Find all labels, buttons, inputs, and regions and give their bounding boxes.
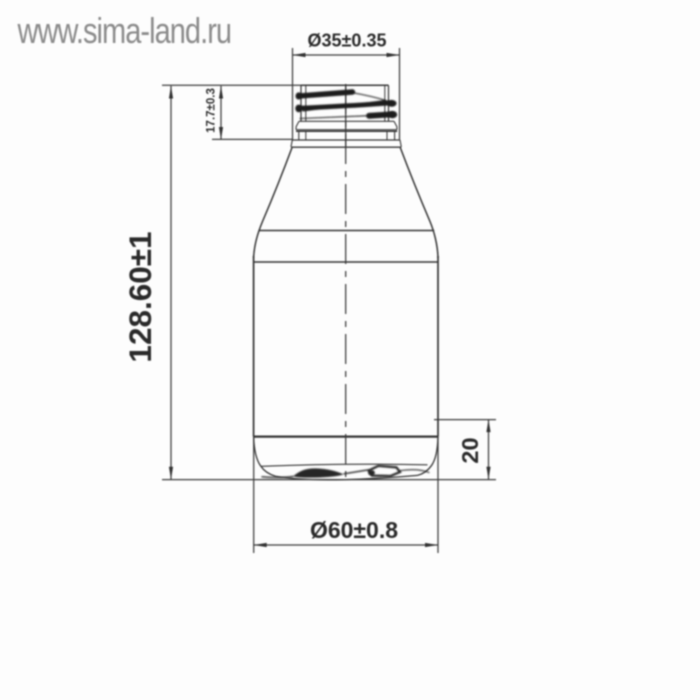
svg-text:128.60±1: 128.60±1 — [122, 231, 158, 362]
svg-text:www.sima-land.ru: www.sima-land.ru — [17, 10, 231, 51]
svg-text:Ø35±0.35: Ø35±0.35 — [308, 31, 387, 51]
svg-text:20: 20 — [457, 437, 483, 463]
svg-text:17.7±0.3: 17.7±0.3 — [206, 88, 218, 133]
svg-text:Ø60±0.8: Ø60±0.8 — [310, 517, 398, 543]
